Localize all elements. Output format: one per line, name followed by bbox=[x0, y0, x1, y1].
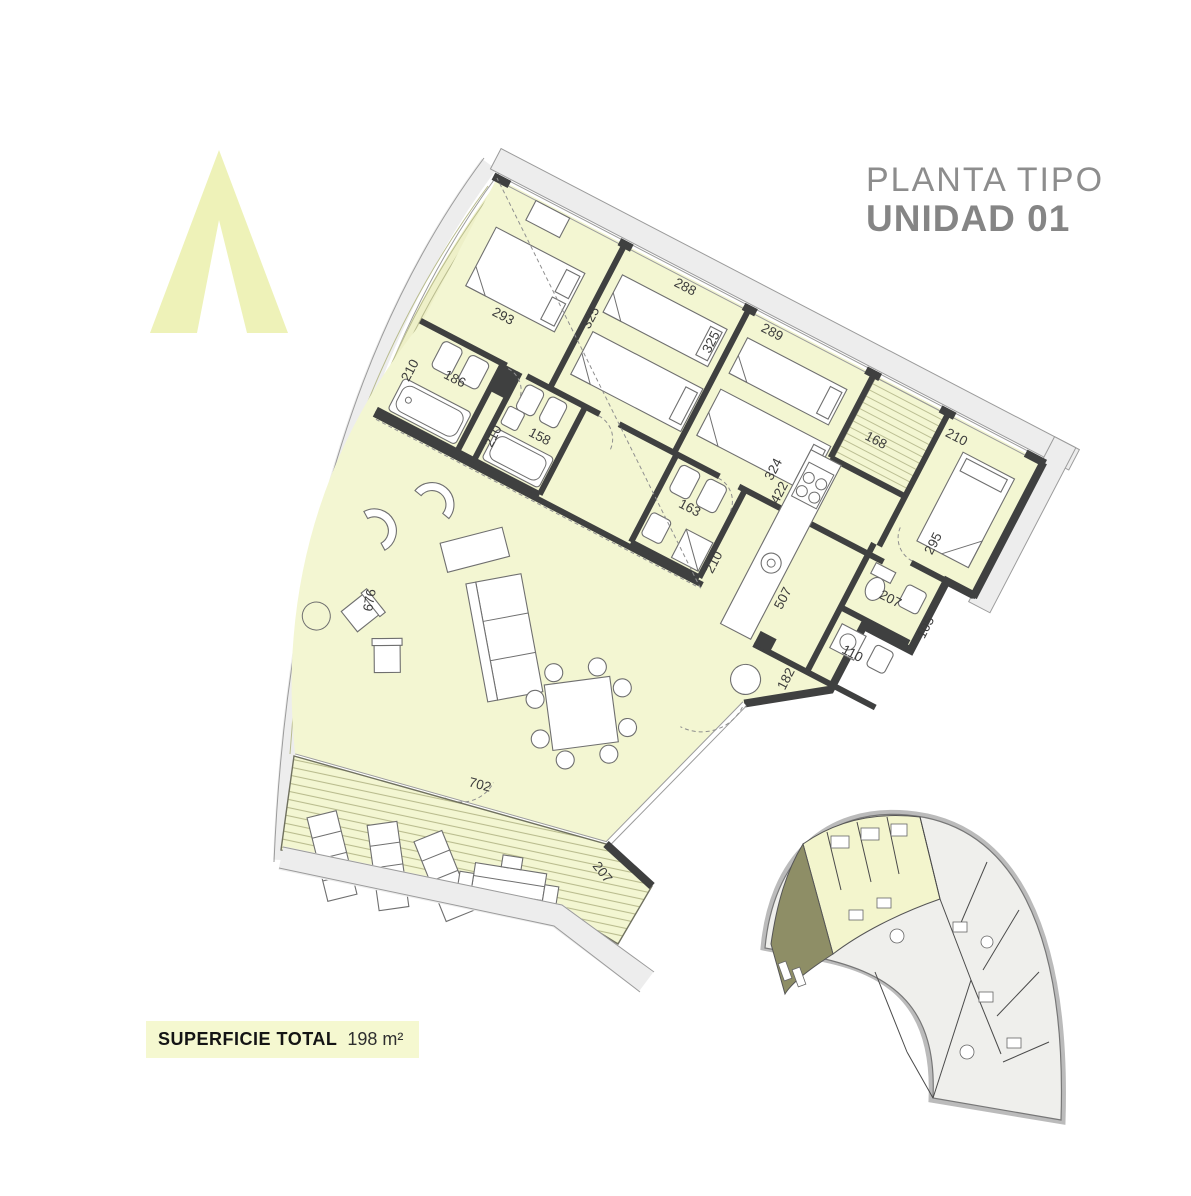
lambda-logo bbox=[150, 150, 288, 333]
plan-title: PLANTA TIPO UNIDAD 01 bbox=[866, 162, 1104, 239]
total-surface-value: 198 m² bbox=[347, 1029, 403, 1050]
total-surface-bar: SUPERFICIE TOTAL 198 m² bbox=[146, 1021, 419, 1058]
key-minimap bbox=[763, 812, 1063, 1122]
plan-title-line2: UNIDAD 01 bbox=[866, 199, 1104, 239]
total-surface-label: SUPERFICIE TOTAL bbox=[158, 1029, 337, 1050]
plan-title-line1: PLANTA TIPO bbox=[866, 162, 1104, 199]
floorplan-page: 2933252883252893244221682102952101862101… bbox=[0, 0, 1191, 1191]
